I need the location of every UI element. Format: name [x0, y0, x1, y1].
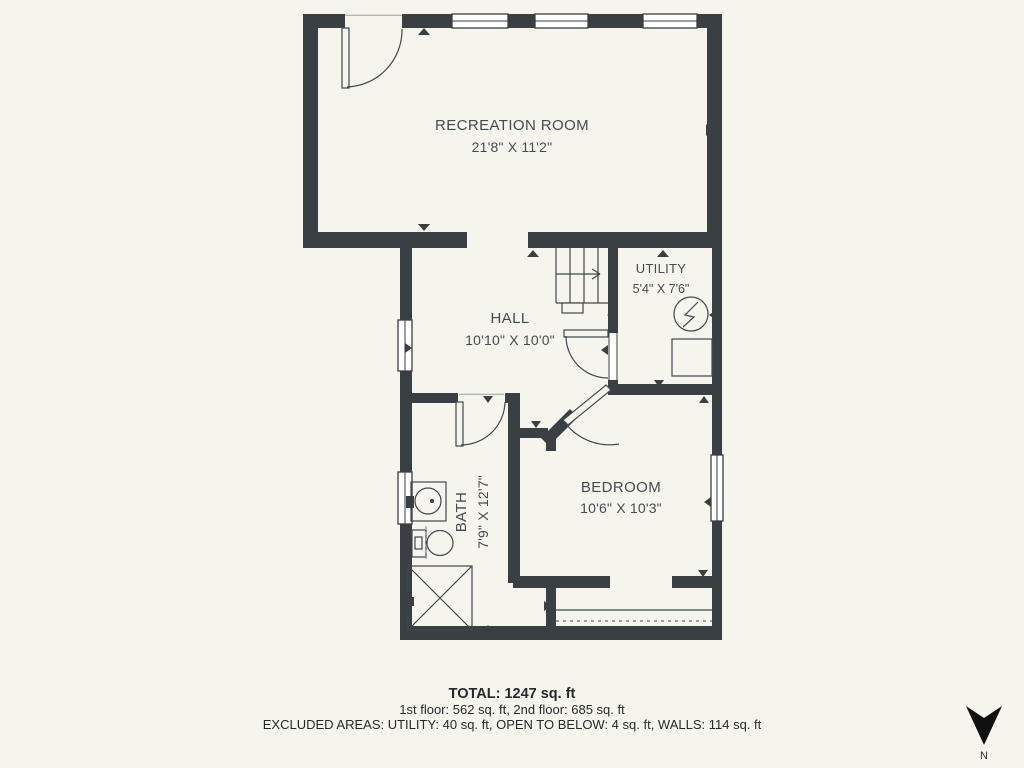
- bath-label: BATH: [453, 492, 470, 533]
- bedroom-dims: 10'6" X 10'3": [580, 500, 662, 516]
- north-label: N: [980, 750, 988, 762]
- utility-appliance-box: [672, 339, 712, 376]
- floorplan-page: RECREATION ROOM 21'8" X 11'2" HALL 10'10…: [0, 0, 1024, 768]
- excluded-areas-text: EXCLUDED AREAS: UTILITY: 40 sq. ft, OPEN…: [0, 717, 1024, 732]
- closet-icon: [556, 610, 712, 621]
- floorplan-drawing: RECREATION ROOM 21'8" X 11'2" HALL 10'10…: [0, 0, 1024, 768]
- bedroom-label: BEDROOM: [581, 479, 661, 496]
- area-summary: TOTAL: 1247 sq. ft 1st floor: 562 sq. ft…: [0, 687, 1024, 732]
- window-icon: [643, 14, 697, 28]
- door-icon: [342, 15, 402, 88]
- doors: [342, 15, 619, 446]
- room-labels: RECREATION ROOM 21'8" X 11'2" HALL 10'10…: [435, 117, 689, 549]
- window-icon: [711, 455, 723, 521]
- utility-dims: 5'4" X 7'6": [633, 282, 690, 296]
- stairs-icon: [556, 248, 608, 313]
- shower-icon: [405, 566, 472, 630]
- toilet-icon: [412, 526, 453, 561]
- total-area-text: TOTAL: 1247 sq. ft: [0, 687, 1024, 702]
- hall-dims: 10'10" X 10'0": [465, 332, 555, 348]
- window-icon: [535, 14, 588, 28]
- recreation-room-dims: 21'8" X 11'2": [472, 139, 553, 155]
- floor-areas-text: 1st floor: 562 sq. ft, 2nd floor: 685 sq…: [0, 702, 1024, 717]
- window-icon: [452, 14, 508, 28]
- stairs-direction-arrow: [556, 269, 600, 279]
- utility-label: UTILITY: [636, 261, 687, 276]
- hall-label: HALL: [490, 310, 529, 327]
- door-icon: [564, 330, 618, 380]
- electrical-panel-icon: [674, 297, 708, 331]
- utility-fixtures: [672, 297, 712, 376]
- bath-dims: 7'9" X 12'7": [475, 475, 491, 549]
- walls: [303, 14, 722, 640]
- door-icon: [456, 394, 505, 446]
- recreation-room-label: RECREATION ROOM: [435, 117, 589, 134]
